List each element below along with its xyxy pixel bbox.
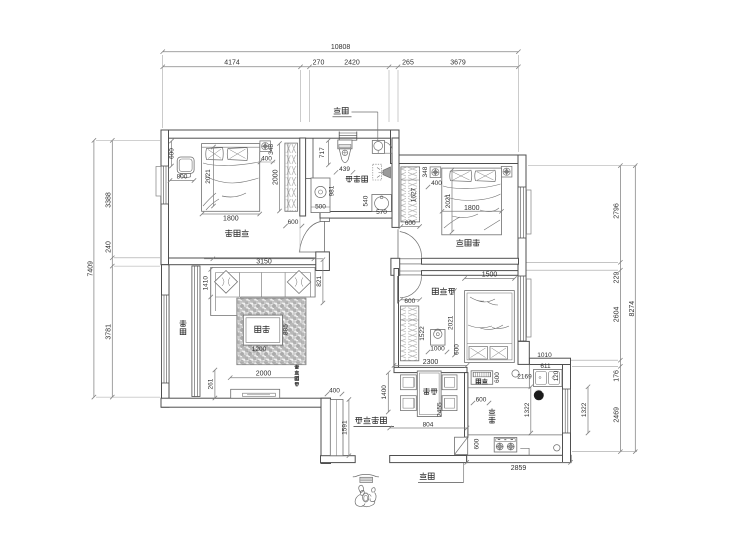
- svg-text:348: 348: [268, 144, 275, 155]
- svg-text:2021: 2021: [445, 193, 452, 208]
- svg-text:600: 600: [404, 298, 415, 305]
- svg-text:1591: 1591: [342, 420, 349, 435]
- svg-text:4174: 4174: [224, 59, 240, 66]
- svg-text:1500: 1500: [482, 271, 498, 278]
- svg-text:8274: 8274: [629, 301, 636, 317]
- svg-text:570: 570: [376, 209, 387, 216]
- svg-text:600: 600: [288, 219, 299, 226]
- svg-text:611: 611: [540, 363, 551, 370]
- svg-text:439: 439: [339, 166, 350, 173]
- svg-text:2604: 2604: [613, 307, 620, 323]
- svg-text:120: 120: [553, 370, 560, 381]
- svg-text:981: 981: [329, 185, 336, 196]
- svg-text:400: 400: [431, 180, 442, 187]
- svg-text:261: 261: [208, 378, 215, 389]
- svg-text:800: 800: [177, 174, 188, 181]
- svg-text:2021: 2021: [205, 169, 212, 184]
- svg-text:1010: 1010: [537, 352, 552, 359]
- svg-text:1410: 1410: [203, 276, 210, 291]
- svg-text:1322: 1322: [581, 402, 588, 417]
- svg-text:2021: 2021: [447, 315, 454, 330]
- svg-text:1400: 1400: [381, 385, 388, 400]
- svg-text:176: 176: [613, 370, 620, 382]
- svg-text:2420: 2420: [344, 59, 360, 66]
- svg-text:500: 500: [315, 203, 326, 210]
- svg-text:2796: 2796: [613, 203, 620, 219]
- svg-text:600: 600: [474, 438, 481, 449]
- svg-text:2469: 2469: [613, 407, 620, 423]
- svg-text:717: 717: [319, 147, 326, 158]
- svg-text:804: 804: [423, 421, 434, 428]
- svg-text:600: 600: [453, 344, 460, 355]
- svg-text:1522: 1522: [419, 326, 426, 341]
- svg-text:2169: 2169: [517, 374, 532, 381]
- svg-text:229: 229: [613, 272, 620, 284]
- svg-text:7409: 7409: [87, 261, 94, 277]
- svg-text:3388: 3388: [105, 192, 112, 208]
- svg-text:3150: 3150: [256, 258, 272, 265]
- svg-text:600: 600: [476, 397, 487, 404]
- svg-text:1000: 1000: [430, 346, 445, 353]
- svg-text:821: 821: [316, 276, 323, 287]
- svg-text:1627: 1627: [411, 187, 418, 202]
- svg-text:2455: 2455: [436, 402, 443, 417]
- svg-text:10808: 10808: [331, 44, 351, 51]
- svg-text:600: 600: [169, 148, 176, 159]
- svg-text:885: 885: [283, 324, 290, 335]
- svg-text:1800: 1800: [464, 205, 480, 212]
- svg-text:400: 400: [261, 156, 272, 163]
- svg-text:2859: 2859: [511, 465, 527, 472]
- svg-text:265: 265: [402, 59, 414, 66]
- svg-text:600: 600: [494, 372, 501, 383]
- svg-text:240: 240: [105, 241, 112, 253]
- svg-text:2000: 2000: [256, 371, 272, 378]
- svg-text:1800: 1800: [223, 216, 239, 223]
- svg-text:2300: 2300: [423, 359, 439, 366]
- svg-text:270: 270: [313, 59, 325, 66]
- svg-text:540: 540: [363, 195, 370, 206]
- svg-text:3781: 3781: [105, 324, 112, 340]
- svg-text:348: 348: [422, 166, 429, 177]
- svg-text:1322: 1322: [524, 402, 531, 417]
- svg-text:3679: 3679: [450, 59, 466, 66]
- svg-text:400: 400: [329, 387, 340, 394]
- svg-text:600: 600: [405, 220, 416, 227]
- svg-text:2000: 2000: [273, 169, 280, 185]
